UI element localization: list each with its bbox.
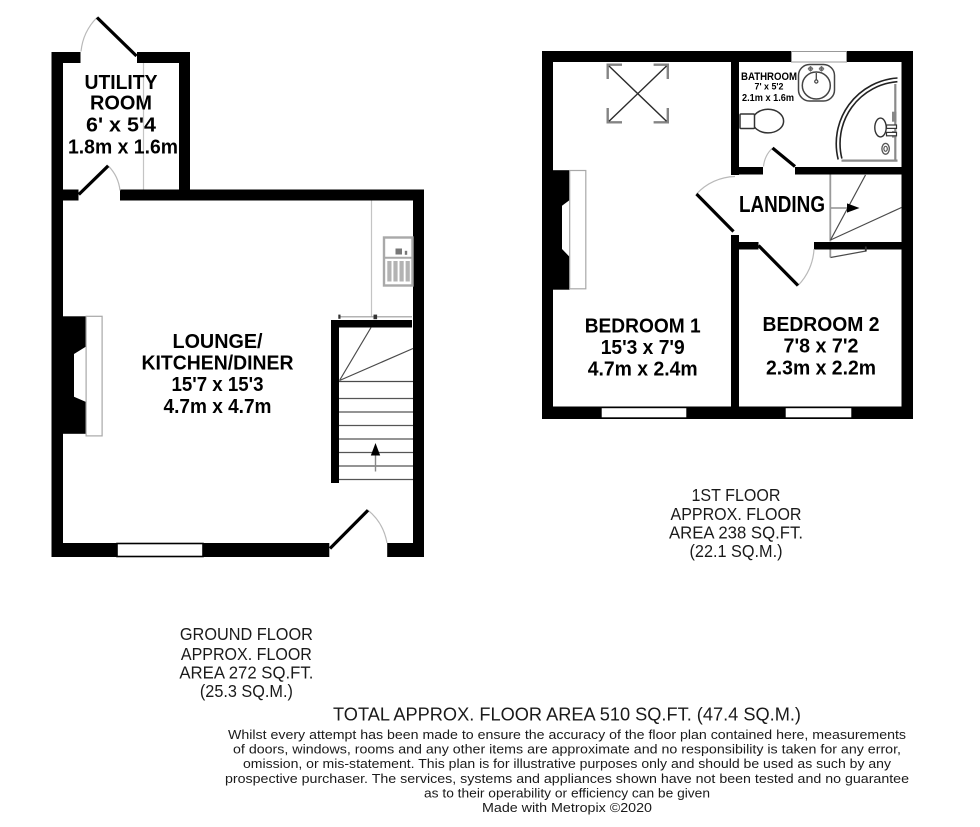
svg-text:4.7m x 2.4m: 4.7m x 2.4m (588, 359, 698, 381)
svg-text:BEDROOM 2: BEDROOM 2 (763, 314, 880, 336)
svg-text:omission, or mis-statement. Th: omission, or mis-statement. This plan is… (243, 756, 892, 771)
svg-text:LOUNGE/: LOUNGE/ (173, 331, 263, 353)
svg-text:1.8m x 1.6m: 1.8m x 1.6m (68, 137, 178, 159)
svg-text:LANDING: LANDING (739, 191, 825, 217)
svg-text:2.1m x 1.6m: 2.1m x 1.6m (742, 93, 794, 104)
svg-text:Whilst every attempt has been: Whilst every attempt has been made to en… (228, 727, 906, 742)
svg-text:6' x 5'4: 6' x 5'4 (86, 115, 157, 137)
svg-text:BEDROOM 1: BEDROOM 1 (585, 316, 701, 338)
svg-text:AREA 272 SQ.FT.: AREA 272 SQ.FT. (179, 663, 313, 683)
svg-text:15'3 x 7'9: 15'3 x 7'9 (601, 337, 685, 359)
svg-text:4.7m x 4.7m: 4.7m x 4.7m (164, 396, 272, 418)
svg-text:ROOM: ROOM (90, 93, 152, 115)
svg-text:15'7 x 15'3: 15'7 x 15'3 (172, 374, 264, 396)
svg-text:TOTAL APPROX. FLOOR AREA 510 S: TOTAL APPROX. FLOOR AREA 510 SQ.FT. (47.… (333, 705, 801, 725)
svg-text:as to their operability or eff: as to their operability or efficiency ca… (424, 786, 710, 801)
svg-text:Made with Metropix ©2020: Made with Metropix ©2020 (482, 800, 652, 815)
svg-text:7'8 x 7'2: 7'8 x 7'2 (784, 336, 859, 358)
svg-text:(22.1 SQ.M.): (22.1 SQ.M.) (690, 541, 783, 561)
svg-text:2.3m x 2.2m: 2.3m x 2.2m (766, 358, 876, 380)
svg-text:of doors, windows, rooms and a: of doors, windows, rooms and any other i… (233, 742, 901, 757)
svg-text:KITCHEN/DINER: KITCHEN/DINER (142, 353, 295, 375)
svg-text:AREA 238 SQ.FT.: AREA 238 SQ.FT. (669, 523, 803, 543)
svg-text:7' x 5'2: 7' x 5'2 (755, 82, 784, 92)
svg-text:prospective purchaser. The ser: prospective purchaser. The services, sys… (225, 771, 909, 786)
svg-text:(25.3 SQ.M.): (25.3 SQ.M.) (200, 681, 293, 701)
svg-text:APPROX. FLOOR: APPROX. FLOOR (671, 504, 802, 524)
svg-text:GROUND FLOOR: GROUND FLOOR (180, 624, 313, 644)
svg-text:UTILITY: UTILITY (85, 72, 159, 94)
svg-text:APPROX. FLOOR: APPROX. FLOOR (181, 644, 312, 664)
svg-text:1ST FLOOR: 1ST FLOOR (692, 485, 781, 505)
